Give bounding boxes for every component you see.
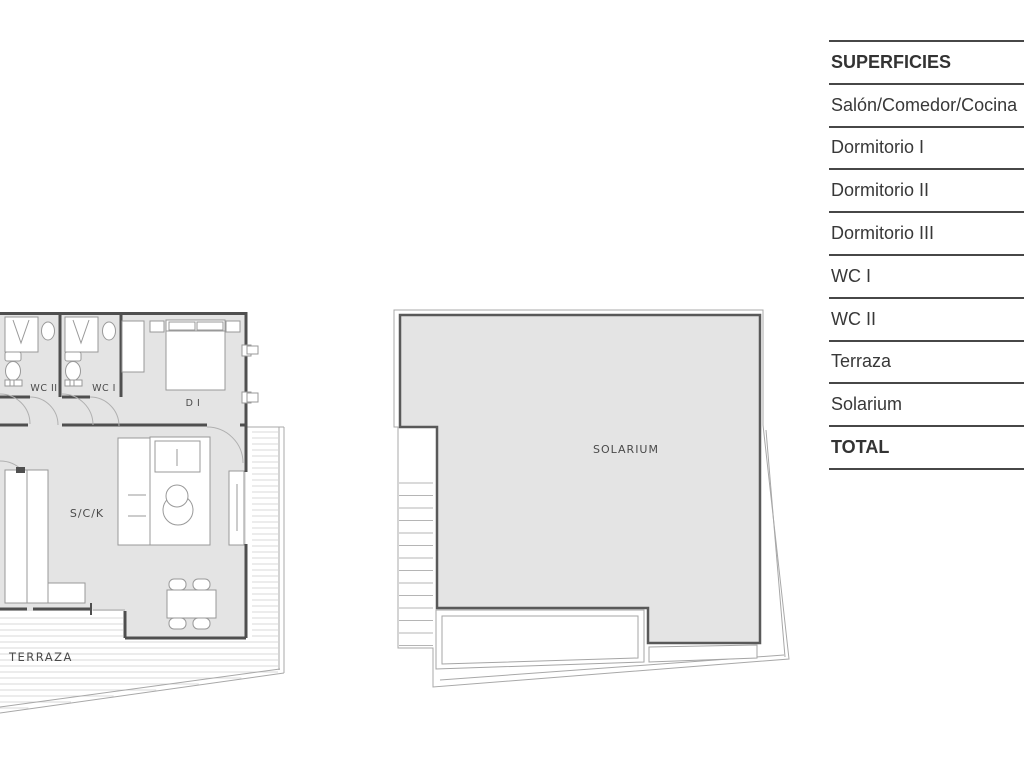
dining-chair bbox=[193, 579, 210, 590]
wc2-label: WC II bbox=[30, 383, 57, 394]
bedroom-label: D I bbox=[186, 398, 201, 409]
pillow bbox=[197, 322, 223, 330]
nightstand bbox=[150, 321, 164, 332]
table-row: WC I bbox=[829, 256, 1024, 299]
living-label: S/C/K bbox=[70, 507, 104, 520]
dining-chair bbox=[169, 618, 186, 629]
table-row: Solarium bbox=[829, 384, 1024, 427]
wall-stub bbox=[16, 467, 25, 473]
wardrobe bbox=[122, 321, 144, 372]
dining-chair bbox=[193, 618, 210, 629]
toilet-tank bbox=[5, 352, 21, 361]
stairs bbox=[399, 483, 433, 646]
toilet-tank bbox=[65, 352, 81, 361]
surfaces-table-rows: Salón/Comedor/CocinaDormitorio IDormitor… bbox=[829, 85, 1024, 470]
solarium-floor bbox=[400, 315, 760, 643]
table-row: Salón/Comedor/Cocina bbox=[829, 85, 1024, 128]
dining-table bbox=[167, 590, 216, 618]
table-row: Dormitorio III bbox=[829, 213, 1024, 256]
nightstand bbox=[226, 321, 240, 332]
shower bbox=[5, 317, 38, 352]
table-row: Dormitorio II bbox=[829, 170, 1024, 213]
roof-edge-strip bbox=[649, 645, 757, 662]
table-row: TOTAL bbox=[829, 427, 1024, 470]
roof-opening bbox=[436, 610, 644, 669]
solarium-plan: SOLARIUM bbox=[394, 310, 789, 687]
toilet-bowl bbox=[66, 362, 81, 381]
terrace-label: TERRAZA bbox=[8, 650, 73, 664]
toilet-bowl bbox=[6, 362, 21, 381]
shower bbox=[65, 317, 98, 352]
wc1-label: WC I bbox=[92, 383, 116, 394]
table-row: WC II bbox=[829, 299, 1024, 342]
apartment-plan: WC II WC I D I S/C/K TERRAZA bbox=[0, 312, 284, 713]
surfaces-table: SUPERFICIES Salón/Comedor/CocinaDormitor… bbox=[829, 40, 1024, 470]
solarium-label: SOLARIUM bbox=[593, 443, 659, 456]
dining-chair bbox=[169, 579, 186, 590]
sink bbox=[42, 322, 55, 340]
page: WC II WC I D I S/C/K TERRAZA SOLARIUM SU… bbox=[0, 0, 1024, 765]
table-row: Dormitorio I bbox=[829, 128, 1024, 171]
sink bbox=[103, 322, 116, 340]
pillow bbox=[169, 322, 195, 330]
kitchen-counter-foot bbox=[48, 583, 85, 603]
table-row: Terraza bbox=[829, 342, 1024, 385]
surfaces-table-header: SUPERFICIES bbox=[829, 42, 1024, 85]
sofa-chaise bbox=[118, 438, 150, 545]
round-chair bbox=[166, 485, 188, 507]
